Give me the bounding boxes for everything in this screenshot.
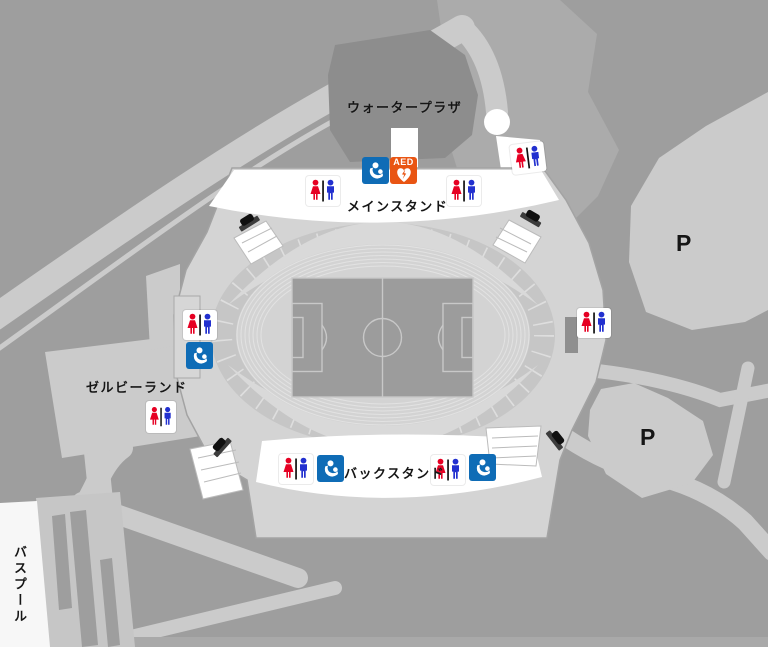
toilet-icon-main-stand-left[interactable] bbox=[306, 176, 340, 206]
toilet-icon-main-stand-right[interactable] bbox=[447, 176, 481, 206]
aed-icon-main-stand[interactable]: AED bbox=[390, 157, 417, 184]
toilet-icon-back-stand-left[interactable] bbox=[279, 454, 313, 484]
toilet-icon-zelvia-land[interactable] bbox=[146, 401, 176, 433]
toilet-icon-east[interactable] bbox=[577, 308, 611, 338]
nursing-room-icon-back-stand-left[interactable] bbox=[317, 455, 344, 482]
zelvia-land-label: ゼルビーランド bbox=[86, 377, 188, 396]
male-figure-icon bbox=[327, 180, 334, 200]
nursing-glyph bbox=[369, 162, 382, 178]
roundabout-circle bbox=[484, 109, 510, 135]
bus-pool-label: バスプール bbox=[10, 545, 29, 625]
toilet-icon-northeast[interactable] bbox=[509, 141, 546, 175]
water-plaza-label: ウォータープラザ bbox=[347, 97, 462, 116]
toilet-icon-west[interactable] bbox=[183, 310, 217, 340]
parking-label-1: P bbox=[676, 230, 691, 257]
heart-bolt-glyph bbox=[397, 168, 411, 182]
female-figure-icon bbox=[311, 180, 321, 200]
nursing-room-icon-back-stand-right[interactable] bbox=[469, 454, 496, 481]
back-stand-label: バックスタンド bbox=[344, 463, 445, 482]
stadium-facility-map: AED bbox=[0, 0, 768, 647]
parking-label-2: P bbox=[640, 424, 655, 451]
nursing-room-icon-main-stand[interactable] bbox=[362, 157, 389, 184]
aed-label: AED bbox=[393, 158, 414, 167]
soccer-field bbox=[292, 278, 473, 397]
nursing-room-icon-west[interactable] bbox=[186, 342, 213, 369]
main-stand-label: メインスタンド bbox=[347, 196, 448, 215]
